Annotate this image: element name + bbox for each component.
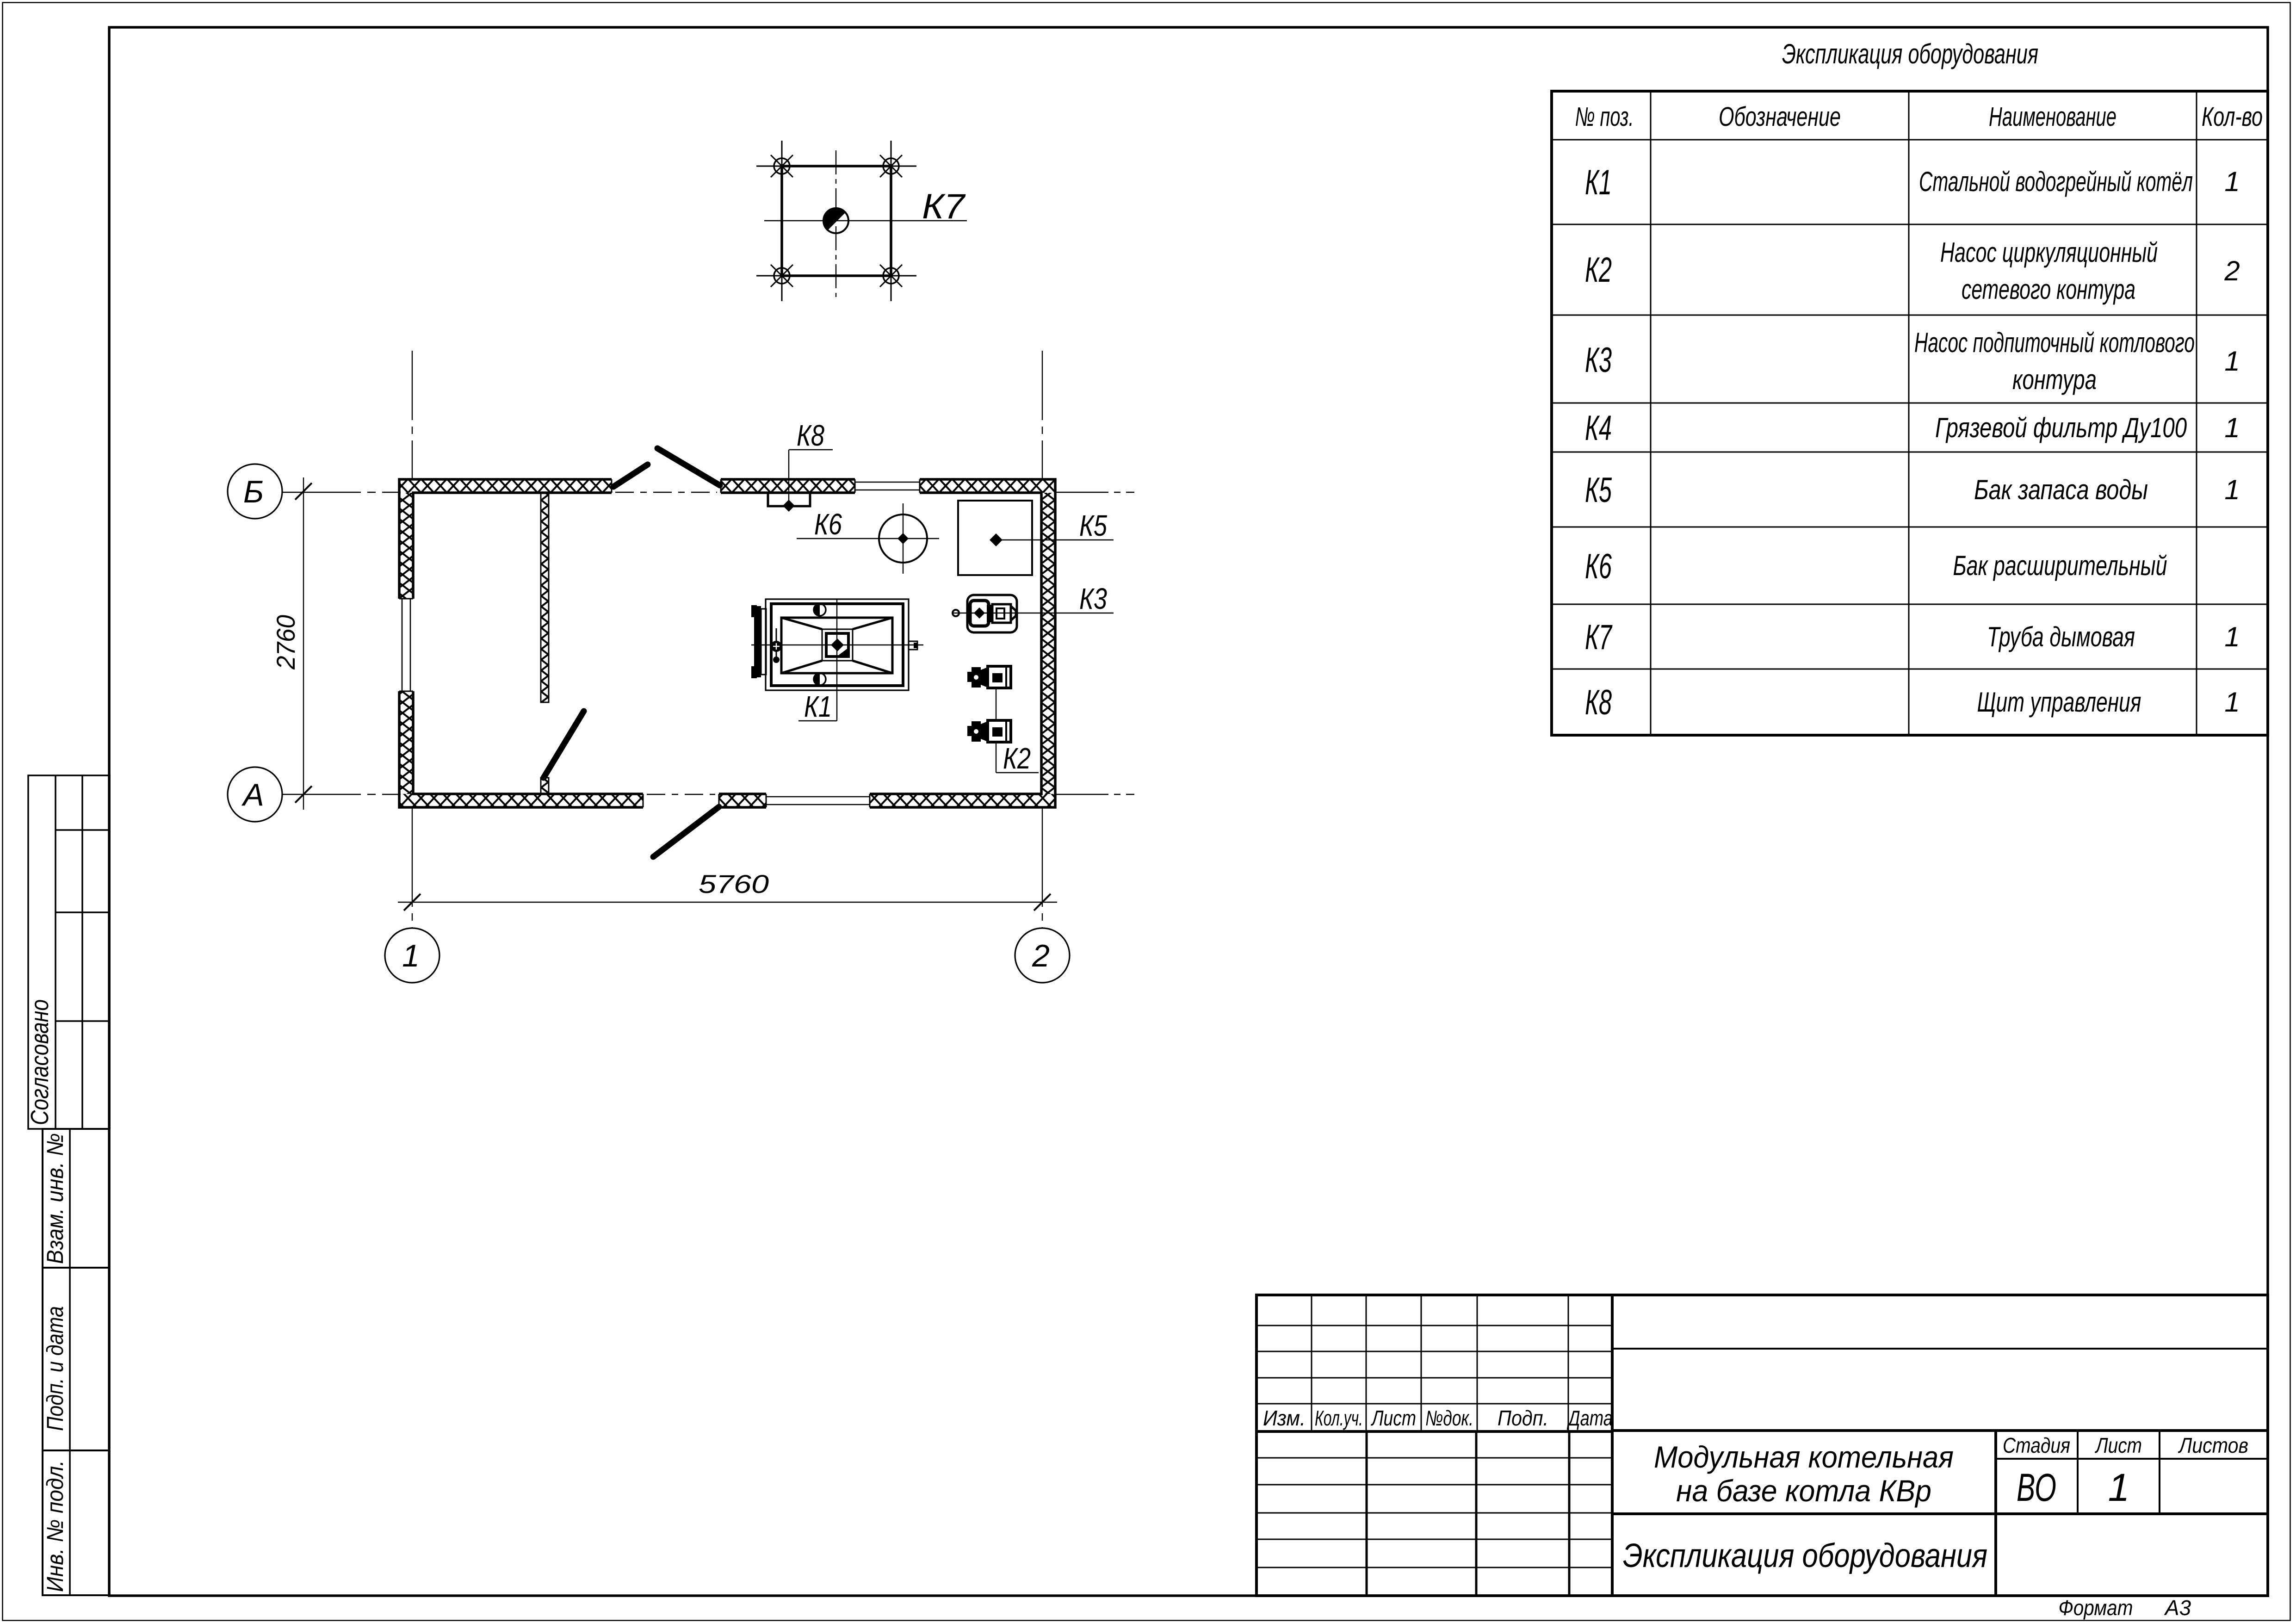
svg-text:Кол-во: Кол-во [2202,102,2263,132]
svg-text:Листов: Листов [2178,1433,2248,1457]
svg-text:Наименование: Наименование [1989,102,2117,132]
svg-text:1: 1 [2224,474,2240,505]
svg-text:Щит управления: Щит управления [1977,687,2141,718]
svg-text:Обозначение: Обозначение [1719,102,1841,132]
svg-text:К4: К4 [1585,409,1612,448]
svg-text:Дата: Дата [1566,1406,1613,1430]
svg-text:1: 1 [2108,1466,2130,1509]
svg-text:К5: К5 [1079,509,1107,542]
svg-text:1: 1 [2224,687,2240,718]
svg-text:Подп.: Подп. [1498,1406,1548,1430]
svg-text:К3: К3 [1585,341,1612,380]
svg-text:№ поз.: № поз. [1575,102,1634,132]
svg-text:Изм.: Изм. [1263,1406,1306,1430]
svg-text:1: 1 [2224,166,2240,197]
svg-text:К6: К6 [1585,547,1612,586]
svg-text:2760: 2760 [271,615,300,670]
svg-text:Насос подпиточный котлового: Насос подпиточный котлового [1914,327,2195,358]
svg-text:сетевого контура: сетевого контура [1962,274,2135,305]
svg-text:Взам. инв. №: Взам. инв. № [42,1133,68,1264]
svg-text:К5: К5 [1585,471,1612,510]
svg-text:Согласовано: Согласовано [26,999,54,1125]
svg-text:Кол.уч.: Кол.уч. [1315,1406,1363,1430]
svg-text:Формат: Формат [2059,1596,2133,1620]
svg-text:Лист: Лист [1371,1406,1416,1430]
svg-text:К1: К1 [1585,163,1612,202]
svg-text:Модульная котельная: Модульная котельная [1654,1440,1954,1474]
svg-text:Б: Б [243,474,264,509]
svg-text:ВО: ВО [2017,1466,2056,1509]
svg-text:К2: К2 [1585,250,1612,290]
svg-text:К2: К2 [1003,742,1031,775]
svg-text:К7: К7 [922,187,966,226]
svg-text:Стальной водогрейный котёл: Стальной водогрейный котёл [1919,166,2193,197]
svg-text:2: 2 [1032,938,1050,973]
svg-text:К6: К6 [814,508,842,541]
svg-text:1: 1 [2224,412,2240,443]
svg-text:№док.: №док. [1425,1406,1473,1430]
svg-text:Экспликация оборудования: Экспликация оборудования [1623,1537,1987,1574]
svg-text:контура: контура [2012,364,2097,395]
svg-text:К3: К3 [1079,582,1107,615]
svg-text:К7: К7 [1585,618,1613,657]
svg-text:Инв. № подл.: Инв. № подл. [42,1460,68,1592]
svg-text:А3: А3 [2164,1596,2191,1620]
svg-text:Бак запаса воды: Бак запаса воды [1974,474,2148,505]
svg-text:Бак расширительный: Бак расширительный [1953,550,2167,581]
svg-text:2: 2 [2224,255,2240,286]
svg-text:К8: К8 [797,419,824,452]
svg-text:1: 1 [2224,621,2240,652]
svg-text:Грязевой фильтр Ду100: Грязевой фильтр Ду100 [1935,412,2187,443]
svg-text:1: 1 [402,938,420,973]
svg-text:Лист: Лист [2094,1433,2142,1457]
svg-text:Насос циркуляционный: Насос циркуляционный [1940,237,2158,268]
svg-text:Труба дымовая: Труба дымовая [1987,621,2135,652]
svg-text:А: А [241,777,264,812]
svg-text:Экспликация оборудования: Экспликация оборудования [1782,38,2038,69]
svg-text:К1: К1 [804,690,832,723]
svg-text:К8: К8 [1585,683,1612,722]
svg-text:5760: 5760 [699,869,769,898]
svg-text:Подп. и дата: Подп. и дата [42,1306,68,1431]
svg-text:на базе котла КВр: на базе котла КВр [1676,1474,1931,1508]
svg-text:Стадия: Стадия [2003,1433,2070,1457]
svg-text:1: 1 [2224,346,2240,377]
